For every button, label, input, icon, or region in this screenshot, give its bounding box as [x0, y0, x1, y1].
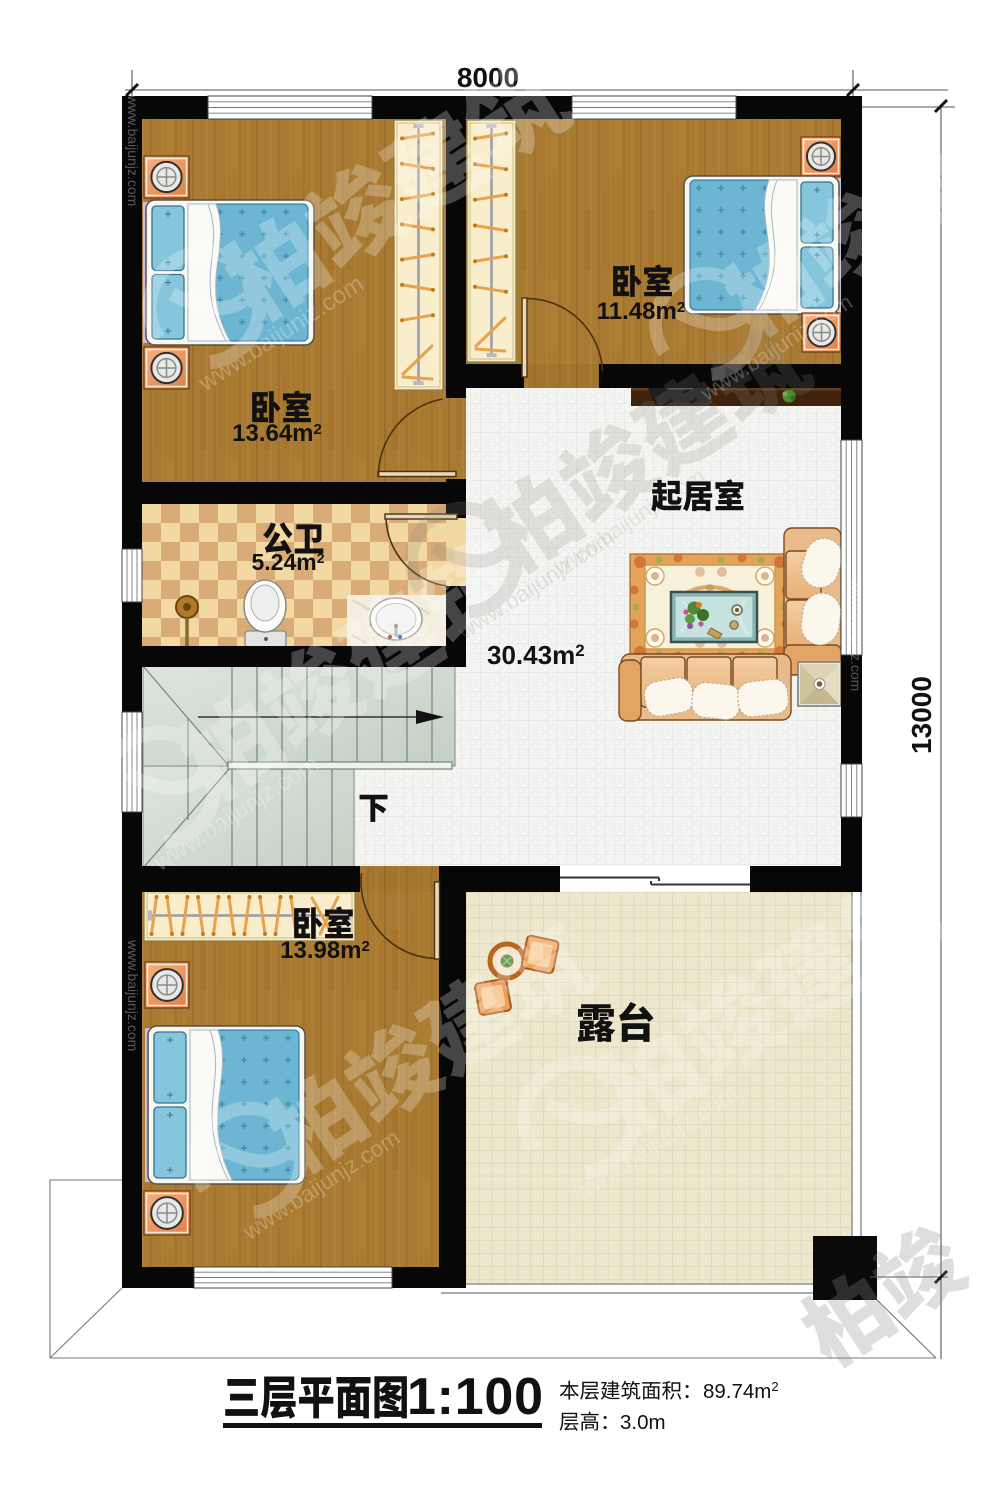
svg-text:www.baijunjz.com: www.baijunjz.com [848, 579, 864, 691]
svg-text:www.baijunjz.com: www.baijunjz.com [125, 939, 141, 1051]
svg-text:13000: 13000 [906, 676, 937, 754]
svg-text:www.baijunjz.com: www.baijunjz.com [125, 94, 141, 206]
svg-text:30.43m2: 30.43m2 [487, 640, 585, 670]
svg-text:1:100: 1:100 [407, 1368, 543, 1426]
svg-text:89.74m2: 89.74m2 [703, 1379, 779, 1403]
svg-text:11.48m2: 11.48m2 [597, 298, 685, 325]
svg-text:13.98m2: 13.98m2 [280, 937, 370, 964]
svg-text:13.64m2: 13.64m2 [232, 420, 322, 447]
svg-text:5.24m2: 5.24m2 [251, 549, 324, 575]
svg-text:3.0m: 3.0m [620, 1411, 666, 1434]
